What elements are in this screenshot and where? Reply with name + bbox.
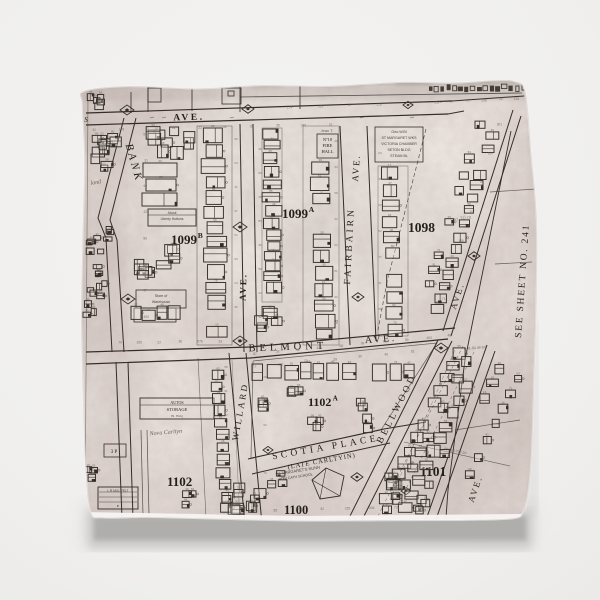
svg-text:78: 78 (263, 399, 267, 403)
svg-text:33: 33 (450, 254, 454, 258)
svg-text:351: 351 (144, 263, 150, 267)
svg-text:43: 43 (226, 489, 230, 493)
svg-text:58: 58 (224, 365, 228, 369)
svg-text:32: 32 (425, 457, 429, 461)
svg-text:41: 41 (86, 297, 90, 301)
svg-text:AVE.: AVE. (238, 273, 249, 301)
svg-text:AVE.: AVE. (350, 154, 362, 182)
svg-text:78: 78 (214, 279, 218, 283)
svg-text:31: 31 (144, 158, 148, 162)
svg-text:70: 70 (263, 471, 267, 475)
svg-text:12: 12 (317, 360, 321, 364)
svg-text:58: 58 (334, 191, 338, 195)
svg-text:56: 56 (99, 91, 103, 95)
svg-text:21: 21 (90, 471, 94, 475)
svg-text:95: 95 (296, 348, 300, 352)
svg-text:STEAM BL: STEAM BL (390, 154, 408, 158)
svg-text:95: 95 (161, 141, 165, 145)
svg-text:87: 87 (253, 352, 257, 356)
svg-text:64: 64 (411, 460, 415, 464)
svg-text:178: 178 (119, 127, 125, 131)
svg-text:95: 95 (318, 414, 322, 418)
svg-text:1099: 1099 (282, 206, 309, 221)
svg-text:Nº10: Nº10 (323, 137, 333, 142)
svg-text:HALL: HALL (322, 149, 334, 154)
svg-text:57: 57 (281, 476, 285, 480)
svg-text:71: 71 (442, 297, 446, 301)
svg-text:34: 34 (270, 477, 274, 481)
svg-text:285: 285 (137, 341, 143, 345)
svg-text:47: 47 (407, 360, 411, 364)
svg-text:1102: 1102 (308, 395, 331, 409)
svg-text:576: 576 (197, 340, 203, 344)
svg-text:86: 86 (143, 237, 147, 241)
svg-text:85: 85 (419, 444, 423, 448)
svg-text:80: 80 (391, 244, 395, 248)
svg-text:66: 66 (378, 307, 382, 311)
svg-text:80: 80 (258, 219, 262, 223)
svg-text:10: 10 (215, 323, 219, 327)
svg-text:90: 90 (468, 467, 472, 471)
svg-text:50: 50 (436, 301, 440, 305)
svg-text:About: About (168, 211, 177, 215)
svg-text:54: 54 (234, 233, 238, 237)
svg-text:33: 33 (158, 159, 162, 163)
svg-text:22: 22 (329, 123, 333, 127)
svg-text:80: 80 (111, 130, 115, 134)
svg-text:450: 450 (144, 315, 150, 319)
svg-text:42: 42 (334, 217, 338, 221)
svg-text:81: 81 (290, 362, 294, 366)
svg-text:73: 73 (509, 386, 513, 390)
svg-text:24: 24 (263, 495, 267, 499)
svg-text:156: 156 (458, 239, 464, 243)
svg-text:Jean T.: Jean T. (321, 128, 334, 133)
svg-text:35: 35 (268, 149, 272, 153)
svg-text:VICTORIA CHAMBER: VICTORIA CHAMBER (381, 142, 417, 146)
svg-text:23: 23 (348, 360, 352, 364)
svg-text:94: 94 (234, 257, 238, 261)
svg-text:463: 463 (426, 336, 432, 340)
svg-text:96: 96 (224, 461, 228, 465)
svg-text:32: 32 (258, 315, 262, 319)
svg-text:55: 55 (457, 344, 461, 348)
svg-text:55: 55 (215, 379, 219, 383)
svg-text:41: 41 (96, 232, 100, 236)
svg-text:74: 74 (232, 501, 236, 505)
svg-text:96: 96 (234, 305, 238, 309)
svg-text:39: 39 (378, 177, 382, 181)
svg-text:52: 52 (439, 382, 443, 386)
svg-text:619: 619 (318, 104, 324, 108)
svg-text:10: 10 (322, 280, 326, 284)
svg-text:52: 52 (321, 507, 325, 511)
svg-text:58: 58 (234, 137, 238, 141)
svg-text:91: 91 (432, 262, 436, 266)
svg-text:31: 31 (234, 185, 238, 189)
svg-text:225: 225 (345, 506, 351, 510)
svg-text:58: 58 (273, 508, 277, 512)
svg-text:P: P (117, 504, 119, 508)
svg-text:99: 99 (143, 132, 147, 136)
svg-text:62: 62 (334, 295, 338, 299)
svg-text:762: 762 (383, 340, 389, 344)
svg-text:81: 81 (334, 269, 338, 273)
svg-text:44: 44 (422, 416, 426, 420)
svg-text:96: 96 (258, 147, 262, 151)
svg-text:95: 95 (480, 180, 484, 184)
svg-text:56: 56 (444, 419, 448, 423)
svg-text:301: 301 (497, 122, 503, 126)
svg-text:164: 164 (514, 97, 520, 101)
svg-text:22: 22 (198, 126, 202, 130)
svg-text:49: 49 (258, 243, 262, 247)
svg-text:30: 30 (250, 124, 254, 128)
svg-text:12: 12 (385, 490, 389, 494)
svg-text:16: 16 (501, 400, 505, 404)
svg-text:61: 61 (217, 390, 221, 394)
svg-text:46: 46 (384, 353, 388, 357)
svg-text:26: 26 (101, 136, 105, 140)
svg-text:307: 307 (469, 210, 475, 214)
svg-text:23: 23 (159, 175, 163, 179)
svg-text:89: 89 (258, 171, 262, 175)
svg-text:22: 22 (157, 340, 161, 344)
svg-text:44: 44 (334, 165, 338, 169)
svg-text:50: 50 (151, 123, 155, 127)
svg-text:90: 90 (311, 413, 315, 417)
svg-text:AUTOS: AUTOS (170, 400, 183, 405)
svg-text:70: 70 (449, 100, 453, 104)
svg-text:92: 92 (92, 128, 96, 132)
svg-text:62: 62 (441, 400, 445, 404)
svg-text:28: 28 (263, 375, 267, 379)
svg-text:3 P: 3 P (111, 450, 118, 455)
svg-text:36: 36 (89, 90, 93, 94)
svg-text:37: 37 (237, 486, 241, 490)
svg-text:65: 65 (216, 366, 220, 370)
svg-text:ST MARGARET WKS: ST MARGARET WKS (381, 136, 417, 140)
svg-text:10: 10 (88, 237, 92, 241)
svg-text:57: 57 (147, 306, 151, 310)
svg-text:40: 40 (263, 447, 267, 451)
svg-text:226: 226 (377, 102, 383, 106)
svg-text:39: 39 (358, 354, 362, 358)
svg-text:22: 22 (304, 359, 308, 363)
svg-text:STORAGE: STORAGE (167, 407, 188, 412)
svg-text:86: 86 (269, 189, 273, 193)
svg-text:13: 13 (483, 390, 487, 394)
svg-text:40: 40 (331, 359, 335, 363)
svg-text:FIRE: FIRE (323, 143, 333, 148)
svg-text:B: B (198, 231, 203, 240)
svg-text:1098: 1098 (408, 220, 435, 235)
svg-text:10: 10 (97, 267, 101, 271)
svg-text:636: 636 (369, 506, 375, 510)
svg-text:83: 83 (211, 124, 215, 128)
svg-text:38: 38 (361, 399, 365, 403)
svg-text:97: 97 (427, 429, 431, 433)
svg-text:82: 82 (411, 350, 415, 354)
svg-text:82: 82 (392, 303, 396, 307)
svg-text:36: 36 (390, 228, 394, 232)
svg-text:36: 36 (185, 487, 189, 491)
svg-text:62: 62 (378, 229, 382, 233)
svg-text:42: 42 (451, 358, 455, 362)
svg-text:26: 26 (378, 203, 382, 207)
svg-text:A: A (309, 205, 315, 214)
svg-text:61: 61 (318, 173, 322, 177)
svg-text:174: 174 (287, 106, 293, 110)
svg-text:40: 40 (403, 476, 407, 480)
svg-text:98: 98 (105, 158, 109, 162)
svg-text:33: 33 (218, 339, 222, 343)
svg-text:34: 34 (378, 333, 382, 337)
svg-text:46: 46 (415, 429, 419, 433)
svg-text:73: 73 (394, 505, 398, 509)
svg-text:94: 94 (234, 161, 238, 165)
svg-text:Bl. Bldg: Bl. Bldg (171, 414, 183, 418)
svg-text:32: 32 (224, 413, 228, 417)
svg-text:40: 40 (348, 103, 352, 107)
svg-text:39: 39 (218, 401, 222, 405)
svg-text:70: 70 (394, 321, 398, 325)
svg-text:Store of: Store of (155, 294, 168, 298)
svg-text:AVE.: AVE. (173, 113, 204, 124)
svg-text:83: 83 (397, 465, 401, 469)
svg-text:71: 71 (437, 248, 441, 252)
svg-text:Geo.W.Bl: Geo.W.Bl (391, 130, 406, 134)
svg-text:35: 35 (276, 124, 280, 128)
svg-text:42: 42 (334, 321, 338, 325)
svg-text:25: 25 (320, 230, 324, 234)
svg-text:64: 64 (378, 151, 382, 155)
svg-text:93: 93 (85, 308, 89, 312)
svg-text:31: 31 (145, 127, 149, 131)
svg-text:Liberty Huttons: Liberty Huttons (161, 217, 184, 221)
svg-text:57: 57 (134, 303, 138, 307)
svg-text:88: 88 (92, 305, 96, 309)
svg-text:59: 59 (322, 296, 326, 300)
svg-text:97: 97 (466, 98, 470, 102)
svg-text:19: 19 (424, 496, 428, 500)
svg-text:72: 72 (320, 190, 324, 194)
svg-text:723: 723 (433, 100, 439, 104)
svg-text:41: 41 (366, 420, 370, 424)
svg-text:94: 94 (258, 291, 262, 295)
svg-text:S: S (84, 116, 88, 124)
svg-text:83: 83 (253, 491, 257, 495)
svg-text:345: 345 (301, 124, 307, 128)
svg-text:16: 16 (491, 375, 495, 379)
svg-text:68: 68 (340, 344, 344, 348)
svg-text:24: 24 (234, 281, 238, 285)
svg-text:50: 50 (516, 372, 520, 376)
svg-text:50: 50 (213, 218, 217, 222)
svg-text:195: 195 (295, 508, 301, 512)
svg-text:39: 39 (319, 158, 323, 162)
svg-text:90: 90 (263, 423, 267, 427)
svg-text:53: 53 (276, 350, 280, 354)
svg-text:94: 94 (388, 213, 392, 217)
svg-text:99: 99 (361, 342, 365, 346)
svg-text:46: 46 (271, 248, 275, 252)
svg-text:12: 12 (404, 499, 408, 503)
svg-text:91: 91 (224, 389, 228, 393)
svg-text:51: 51 (378, 281, 382, 285)
svg-text:L.R.MILL FELT: L.R.MILL FELT (107, 489, 128, 493)
svg-text:76: 76 (394, 360, 398, 364)
svg-text:19: 19 (86, 463, 90, 467)
svg-text:58: 58 (258, 267, 262, 271)
svg-text:SETON BLDG: SETON BLDG (387, 148, 410, 152)
svg-text:20: 20 (334, 139, 338, 143)
svg-text:80: 80 (408, 444, 412, 448)
svg-text:79: 79 (224, 485, 228, 489)
svg-text:607: 607 (488, 152, 494, 156)
svg-text:91: 91 (451, 268, 455, 272)
svg-text:44: 44 (223, 125, 227, 129)
svg-text:58: 58 (467, 202, 471, 206)
svg-text:59: 59 (405, 338, 409, 342)
svg-text:27: 27 (464, 377, 468, 381)
svg-text:61: 61 (219, 415, 223, 419)
svg-text:49: 49 (160, 302, 164, 306)
svg-text:34: 34 (224, 437, 228, 441)
svg-text:223: 223 (144, 210, 150, 214)
svg-text:45: 45 (258, 195, 262, 199)
svg-text:18: 18 (270, 215, 274, 219)
svg-text:92: 92 (172, 126, 176, 130)
svg-text:95: 95 (248, 509, 252, 513)
svg-text:49: 49 (272, 202, 276, 206)
svg-text:17: 17 (388, 163, 392, 167)
svg-text:95: 95 (323, 263, 327, 267)
svg-text:37: 37 (234, 209, 238, 213)
svg-text:64: 64 (334, 243, 338, 247)
svg-text:84: 84 (212, 187, 216, 191)
svg-text:30: 30 (498, 361, 502, 365)
svg-text:69: 69 (451, 404, 455, 408)
svg-text:54: 54 (95, 132, 99, 136)
svg-text:87: 87 (261, 394, 265, 398)
svg-text:18: 18 (392, 476, 396, 480)
svg-text:29: 29 (448, 215, 452, 219)
svg-text:36: 36 (178, 340, 182, 344)
svg-text:A: A (333, 395, 338, 403)
svg-text:46: 46 (271, 257, 275, 261)
svg-text:208: 208 (481, 98, 487, 102)
svg-text:91: 91 (486, 433, 490, 437)
svg-text:28: 28 (269, 305, 273, 309)
svg-text:51: 51 (468, 150, 472, 154)
svg-text:84: 84 (270, 137, 274, 141)
svg-text:32: 32 (141, 267, 145, 271)
svg-text:77: 77 (378, 255, 382, 259)
svg-text:33: 33 (491, 128, 495, 132)
svg-text:79: 79 (118, 341, 122, 345)
svg-text:69: 69 (433, 394, 437, 398)
svg-text:47: 47 (388, 181, 392, 185)
svg-text:36: 36 (92, 464, 96, 468)
svg-text:48: 48 (184, 498, 188, 502)
svg-text:421: 421 (317, 346, 323, 350)
svg-text:60: 60 (144, 184, 148, 188)
svg-text:15: 15 (499, 97, 503, 101)
svg-text:37: 37 (143, 289, 147, 293)
svg-text:45: 45 (419, 505, 423, 509)
